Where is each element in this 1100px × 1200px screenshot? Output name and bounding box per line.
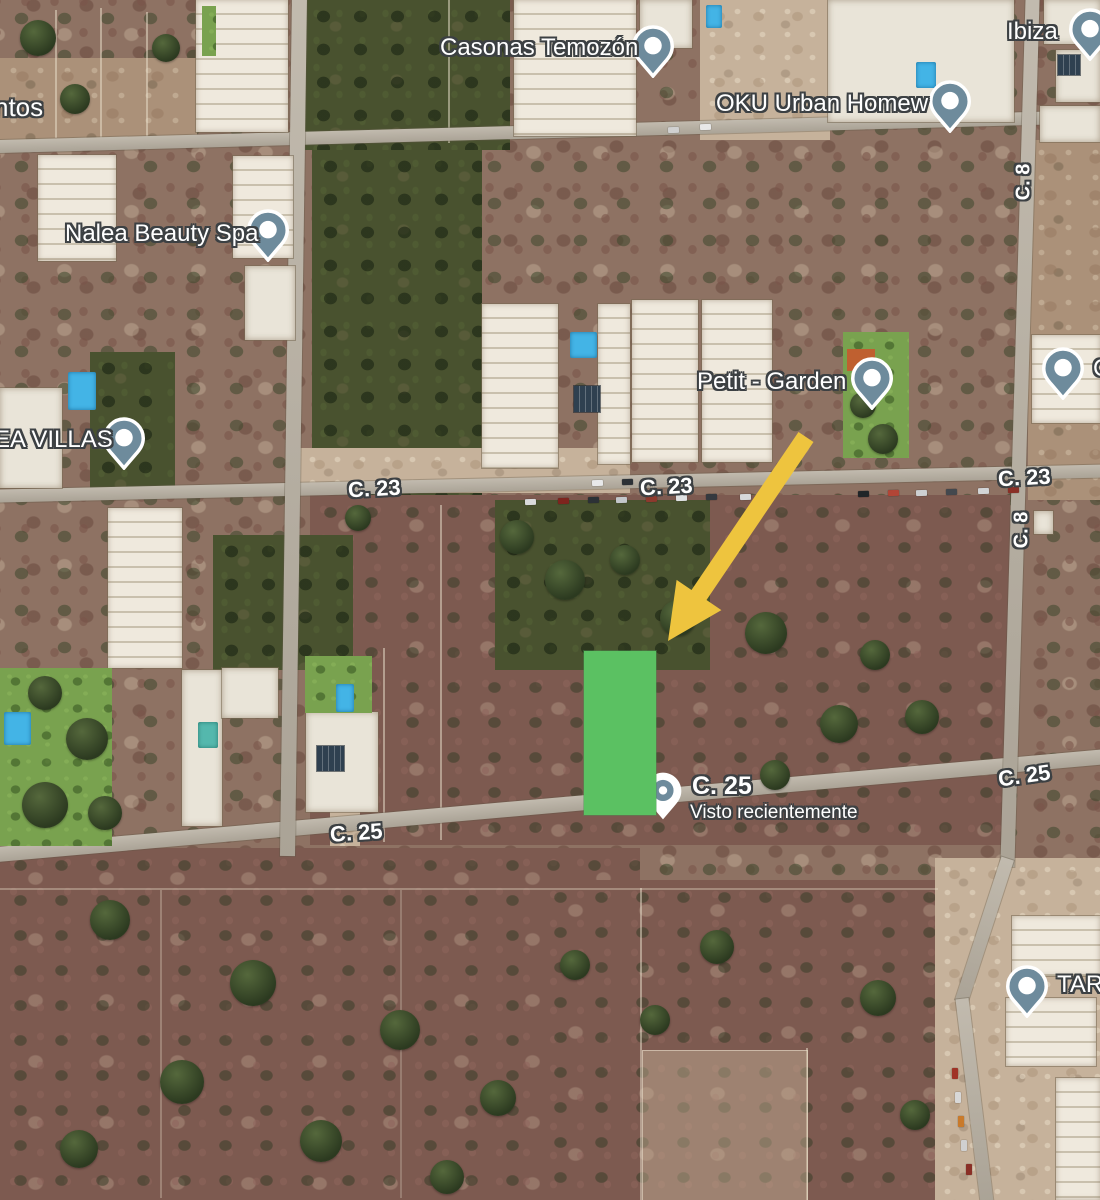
- car: [588, 497, 599, 503]
- tree: [60, 1130, 98, 1168]
- tree: [545, 560, 585, 600]
- building: [1040, 106, 1100, 142]
- place-pin-icon: [851, 357, 893, 410]
- tree: [60, 84, 90, 114]
- building: [182, 670, 222, 826]
- tree: [900, 1100, 930, 1130]
- car: [668, 127, 679, 133]
- tree: [610, 545, 640, 575]
- place-label-oku-urban-homew[interactable]: OKU Urban Homew: [716, 90, 928, 118]
- tree: [88, 796, 122, 830]
- place-pin-icon: [1042, 347, 1084, 400]
- tree: [820, 705, 858, 743]
- swimming-pool: [336, 684, 354, 712]
- tree: [28, 676, 62, 710]
- place-label-tare[interactable]: TARE: [1057, 971, 1100, 999]
- car: [946, 489, 957, 495]
- tree: [380, 1010, 420, 1050]
- satellite-map[interactable]: C. 23 C. 23 C. 23 C. 8 C. 8 C. 25 C. 25: [0, 0, 1100, 1200]
- tree: [230, 960, 276, 1006]
- tree: [160, 1060, 204, 1104]
- tree: [868, 424, 898, 454]
- recent-street-label: C. 25: [692, 772, 752, 801]
- swimming-pool: [198, 722, 218, 748]
- car: [706, 494, 717, 500]
- place-label-ibiza[interactable]: Ibiza: [1007, 18, 1058, 46]
- place-label-right-edge[interactable]: C: [1093, 355, 1100, 383]
- street-label-c8: C. 8: [1011, 512, 1034, 549]
- tree: [745, 612, 787, 654]
- car: [700, 124, 711, 130]
- building: [1034, 511, 1053, 534]
- recent-note-label: Visto recientemente: [690, 802, 858, 824]
- courtyard-lawn: [202, 6, 216, 56]
- tree: [700, 930, 734, 964]
- pin-right-edge[interactable]: [1042, 347, 1084, 400]
- car: [966, 1164, 972, 1175]
- swimming-pool: [4, 712, 31, 745]
- tree: [20, 20, 56, 56]
- lot-line: [55, 10, 57, 138]
- tree: [760, 760, 790, 790]
- car: [978, 488, 989, 494]
- tree: [66, 718, 108, 760]
- swimming-pool: [570, 332, 597, 358]
- tree: [90, 900, 130, 940]
- tree: [430, 1160, 464, 1194]
- pin-ibiza[interactable]: [1069, 8, 1100, 61]
- tree: [660, 600, 696, 636]
- car: [916, 490, 927, 496]
- car: [525, 499, 536, 505]
- place-label-ea-villas[interactable]: EA VILLAS: [0, 426, 113, 454]
- street-label-c8: C. 8: [1013, 164, 1036, 201]
- lot-line: [160, 890, 162, 1198]
- place-label-nalea-beauty-spa[interactable]: Nalea Beauty Spa: [65, 220, 258, 248]
- place-label-casonas-temozon[interactable]: Casonas Temozón: [440, 34, 638, 62]
- tree: [152, 34, 180, 62]
- building: [222, 668, 278, 718]
- lot-line: [100, 8, 102, 138]
- tree: [860, 640, 890, 670]
- car: [958, 1116, 964, 1127]
- building: [598, 304, 630, 464]
- car: [952, 1068, 958, 1079]
- place-pin-icon: [929, 80, 971, 133]
- building: [514, 0, 636, 136]
- tree: [640, 1005, 670, 1035]
- car: [955, 1092, 961, 1103]
- building: [1056, 1078, 1100, 1200]
- lot-line: [440, 505, 442, 840]
- swimming-pool: [706, 5, 722, 28]
- lot-line: [0, 888, 938, 890]
- car: [558, 498, 569, 504]
- place-label-petit-garden[interactable]: Petit - Garden: [697, 368, 846, 396]
- highlighted-lot[interactable]: [584, 651, 656, 815]
- building: [632, 300, 698, 462]
- car: [961, 1140, 967, 1151]
- pin-oku-urban-homew[interactable]: [929, 80, 971, 133]
- building: [482, 304, 558, 468]
- terrain-forest: [312, 150, 482, 495]
- tree: [345, 505, 371, 531]
- street-label-c25: C. 25: [329, 818, 383, 848]
- car: [740, 494, 751, 500]
- car: [858, 491, 869, 497]
- tree: [500, 520, 534, 554]
- tree: [905, 700, 939, 734]
- tree: [300, 1120, 342, 1162]
- lot-line: [146, 12, 148, 138]
- tree: [860, 980, 896, 1016]
- solar-panels: [574, 386, 600, 412]
- pin-petit-garden[interactable]: [851, 357, 893, 410]
- pin-tare[interactable]: [1006, 965, 1048, 1018]
- car: [888, 490, 899, 496]
- solar-panels: [317, 746, 344, 771]
- place-pin-icon: [1006, 965, 1048, 1018]
- lot-line: [448, 0, 450, 143]
- building: [245, 266, 295, 340]
- terrain-dirt: [1028, 140, 1100, 500]
- place-label-partial-ntos[interactable]: ntos: [0, 92, 43, 123]
- street-label-c23: C. 23: [997, 464, 1051, 493]
- car: [592, 480, 603, 486]
- street-label-c23: C. 23: [347, 475, 401, 504]
- swimming-pool: [68, 372, 96, 410]
- car: [616, 497, 627, 503]
- tree: [560, 950, 590, 980]
- tree: [22, 782, 68, 828]
- street-label-c23: C. 23: [639, 473, 693, 502]
- building: [108, 508, 182, 668]
- car: [622, 479, 633, 485]
- cleared-lot: [642, 1050, 808, 1200]
- place-pin-icon: [1069, 8, 1100, 61]
- tree: [480, 1080, 516, 1116]
